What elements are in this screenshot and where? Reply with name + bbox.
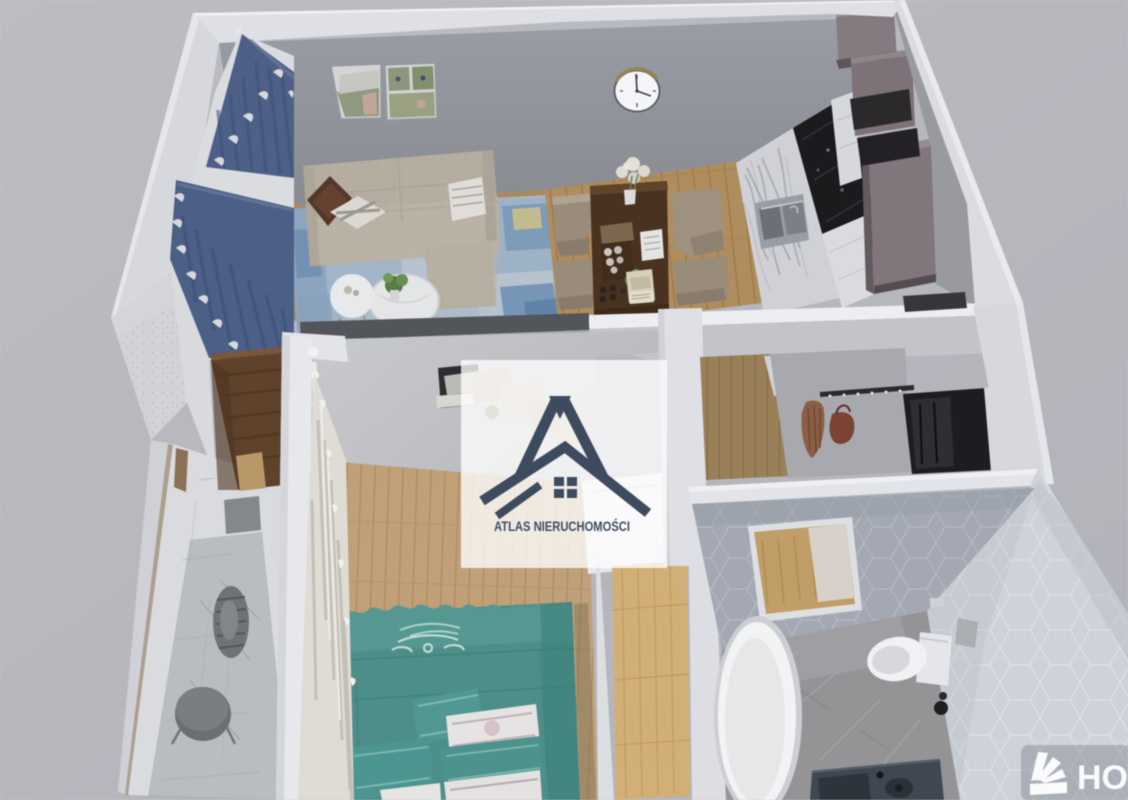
- svg-text:HOM: HOM: [1077, 759, 1128, 797]
- svg-text:ATLAS NIERUCHOMOŚCI: ATLAS NIERUCHOMOŚCI: [494, 517, 630, 534]
